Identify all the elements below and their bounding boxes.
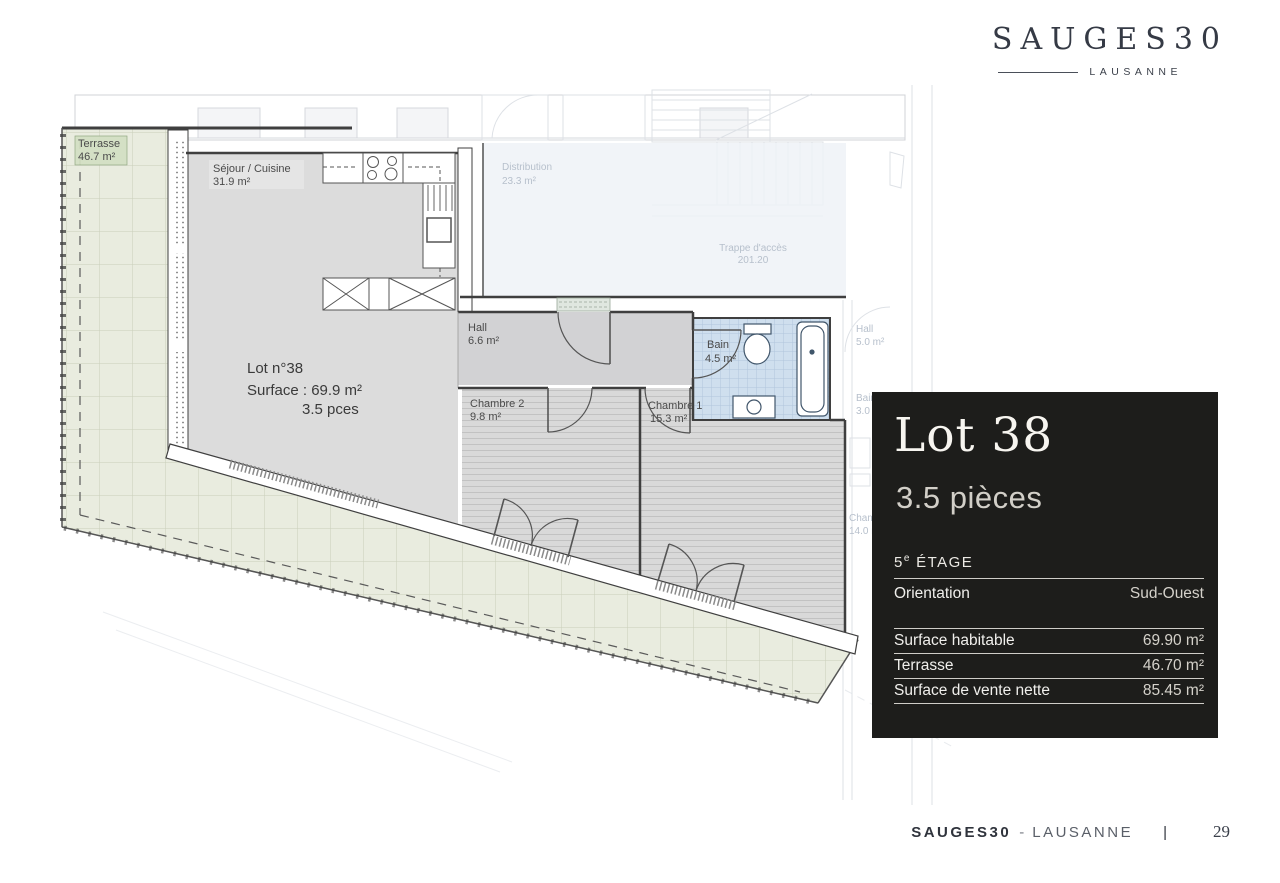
hatch-value: 201.20 [738, 255, 769, 266]
chambre2-label: Chambre 2 [470, 398, 524, 410]
brand-logo: SAUGES30 LAUSANNE [992, 22, 1228, 78]
neighbor-hall-label: Hall [856, 324, 873, 335]
orientation-value: Sud-Ouest [1130, 585, 1204, 603]
page-footer: SAUGES30 - LAUSANNE | 29 [911, 822, 1230, 842]
surface-habitable-value: 69.90 m² [1143, 632, 1204, 650]
panel-rooms-title: 3.5 pièces [896, 480, 1042, 516]
bain-area: 4.5 m² [705, 353, 737, 365]
orientation-row: Orientation Sud-Ouest [894, 582, 1204, 606]
terrasse-row-value: 46.70 m² [1143, 657, 1204, 675]
surface-habitable-label: Surface habitable [894, 632, 1015, 650]
orientation-label: Orientation [894, 585, 970, 603]
terrasse-label: Terrasse [78, 138, 120, 150]
sejour-label: Séjour / Cuisine [213, 163, 291, 175]
room-hall [458, 312, 693, 385]
hall-area: 6.6 m² [468, 335, 500, 347]
chambre1-area: 15.3 m² [650, 413, 688, 425]
floor-ordinal: e [904, 553, 911, 564]
floor-number: 5 [894, 554, 904, 571]
lot-info-panel: Lot 38 3.5 pièces 5e ÉTAGE Orientation S… [872, 392, 1218, 738]
footer-separator: - [1019, 824, 1024, 841]
logo-divider-line [998, 72, 1078, 73]
terrasse-area: 46.7 m² [78, 151, 116, 163]
panel-divider [894, 578, 1204, 579]
brand-city: LAUSANNE [1089, 66, 1182, 78]
hall-label: Hall [468, 322, 487, 334]
surface-vente-value: 85.45 m² [1143, 682, 1204, 700]
surface-row: Surface habitable 69.90 m² [894, 629, 1204, 653]
terrasse-row-label: Terrasse [894, 657, 953, 675]
surface-row: Surface de vente nette 85.45 m² [894, 679, 1204, 703]
distribution-label: Distribution [502, 162, 552, 173]
panel-divider [894, 703, 1204, 704]
chambre1-label: Chambre 1 [648, 400, 702, 412]
chambre2-area: 9.8 m² [470, 411, 502, 423]
panel-floor: 5e ÉTAGE [894, 553, 973, 571]
footer-brand: SAUGES30 [911, 824, 1011, 841]
distribution-area: Distribution 23.3 m² Trappe d'accès 201.… [483, 143, 846, 297]
footer-city: LAUSANNE [1032, 824, 1133, 841]
floor-word: ÉTAGE [916, 554, 973, 571]
distribution-area-value: 23.3 m² [502, 176, 537, 187]
surface-vente-label: Surface de vente nette [894, 682, 1050, 700]
lot-pieces-text: 3.5 pces [302, 401, 359, 418]
panel-lot-title: Lot 38 [894, 408, 1053, 463]
neighbor-hall-area: 5.0 m² [856, 337, 885, 348]
surface-row: Terrasse 46.70 m² [894, 654, 1204, 678]
lot-number-text: Lot n°38 [247, 360, 303, 377]
bain-label: Bain [707, 339, 729, 351]
sejour-area: 31.9 m² [213, 176, 251, 188]
brand-name: SAUGES30 [992, 22, 1228, 57]
footer-divider: | [1163, 824, 1167, 841]
page-number: 29 [1213, 822, 1230, 842]
hatch-label: Trappe d'accès [719, 243, 787, 254]
lot-surface-text: Surface : 69.9 m² [247, 382, 362, 399]
